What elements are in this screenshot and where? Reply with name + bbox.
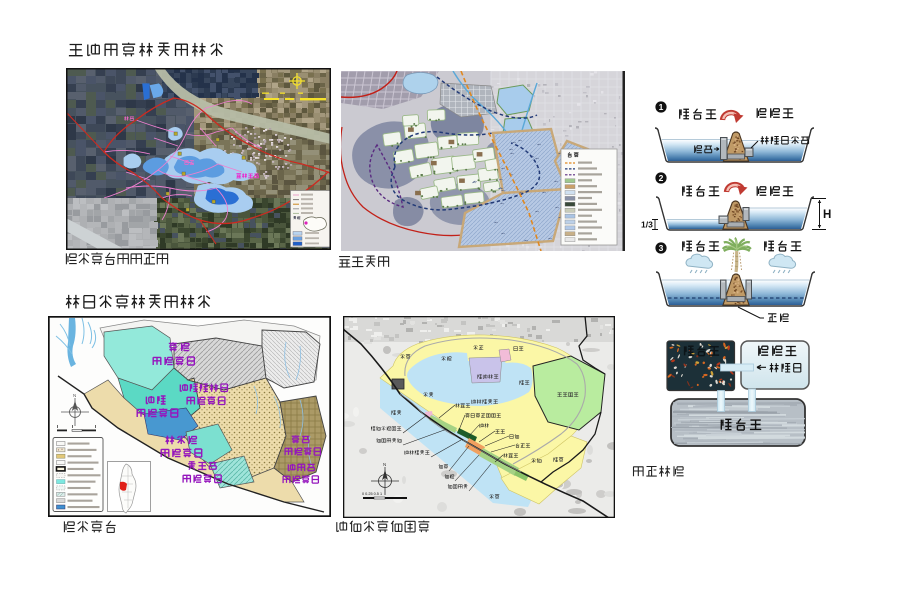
svg-text:N: N [383,462,386,467]
svg-text:2: 2 [659,173,664,183]
svg-text:N: N [73,393,76,398]
svg-text:1/3: 1/3 [641,220,653,230]
svg-text:1: 1 [659,102,664,112]
svg-text:H: H [823,209,831,221]
svg-text:3: 3 [659,243,664,253]
svg-text:0 0.25 0.5 1: 0 0.25 0.5 1 [362,492,382,496]
